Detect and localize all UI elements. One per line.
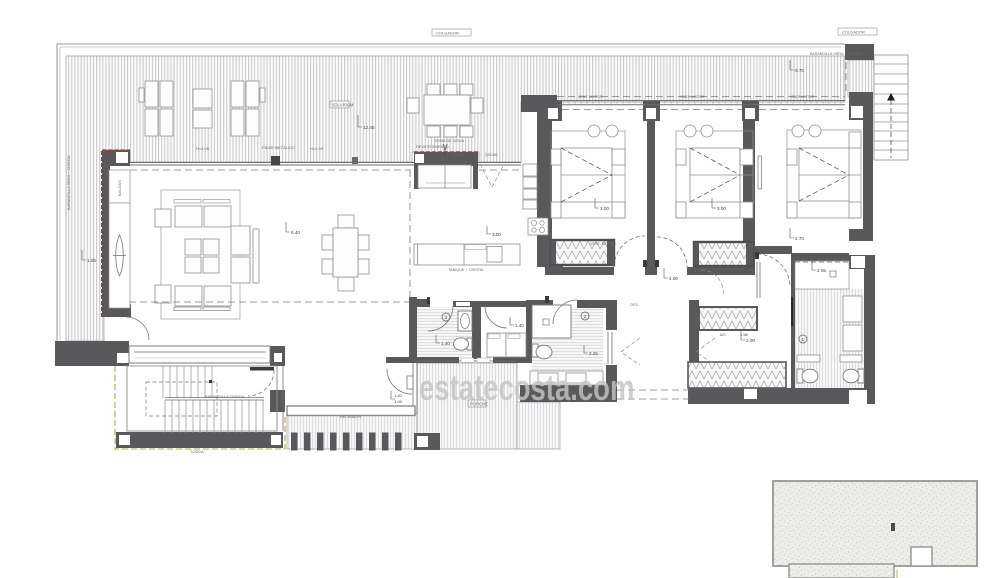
svg-text:H=4.05: H=4.05 bbox=[196, 146, 210, 151]
svg-text:1.40: 1.40 bbox=[515, 323, 524, 328]
svg-text:SOLARIUM: SOLARIUM bbox=[332, 102, 354, 107]
svg-text:VENT. MOTOR: VENT. MOTOR bbox=[680, 95, 705, 99]
svg-text:OH.108: OH.108 bbox=[813, 393, 826, 397]
svg-text:220-80: 220-80 bbox=[452, 152, 465, 157]
svg-text:1.40: 1.40 bbox=[441, 341, 450, 346]
svg-text:BARANDILLA OBRA + CRISTAL: BARANDILLA OBRA + CRISTAL bbox=[67, 155, 71, 210]
svg-text:2.00: 2.00 bbox=[746, 338, 755, 343]
svg-text:3.00: 3.00 bbox=[600, 206, 609, 211]
svg-text:3.00: 3.00 bbox=[492, 232, 501, 237]
svg-text:VENT. MOTOR: VENT. MOTOR bbox=[790, 95, 815, 99]
svg-text:3.05: 3.05 bbox=[394, 399, 403, 404]
svg-text:6.40: 6.40 bbox=[291, 230, 300, 235]
svg-text:1.40: 1.40 bbox=[394, 393, 403, 398]
svg-text:4.90: 4.90 bbox=[669, 276, 678, 281]
svg-text:BARANDILLA CRISTAL: BARANDILLA CRISTAL bbox=[205, 395, 245, 399]
svg-text:VENT. MOTOR: VENT. MOTOR bbox=[578, 95, 603, 99]
svg-text:BALDAS: BALDAS bbox=[117, 180, 122, 196]
svg-text:2.70: 2.70 bbox=[795, 236, 804, 241]
svg-text:220-80: 220-80 bbox=[485, 152, 498, 157]
svg-text:estatecosta.com: estatecosta.com bbox=[419, 367, 634, 407]
svg-text:COLGADOR: COLGADOR bbox=[842, 30, 865, 35]
svg-text:TOSCA: TOSCA bbox=[190, 449, 204, 454]
svg-text:9.70: 9.70 bbox=[795, 68, 804, 73]
svg-text:3.00: 3.00 bbox=[717, 206, 726, 211]
svg-text:TOMA DE AGUA: TOMA DE AGUA bbox=[434, 138, 464, 143]
svg-text:H=2.95: H=2.95 bbox=[310, 146, 324, 151]
svg-text:VENT. MOTOR: VENT. MOTOR bbox=[590, 242, 616, 246]
svg-text:2.25: 2.25 bbox=[589, 351, 598, 356]
svg-text:PILAR METÁLICO: PILAR METÁLICO bbox=[262, 145, 295, 150]
svg-text:BARANDILLA OBRA + CRISTAL: BARANDILLA OBRA + CRISTAL bbox=[810, 52, 862, 56]
svg-text:2.05: 2.05 bbox=[817, 268, 826, 273]
svg-text:COLGADOR: COLGADOR bbox=[436, 31, 459, 36]
svg-text:OP.2: OP.2 bbox=[630, 303, 638, 307]
svg-text:1.58: 1.58 bbox=[740, 332, 749, 337]
svg-text:A/C: A/C bbox=[720, 333, 726, 337]
svg-text:TABIQUE + CRISTAL: TABIQUE + CRISTAL bbox=[448, 268, 484, 272]
svg-text:RECIBIDOR: RECIBIDOR bbox=[340, 415, 361, 419]
svg-text:1.05: 1.05 bbox=[87, 258, 96, 263]
svg-text:12.45: 12.45 bbox=[363, 125, 375, 130]
